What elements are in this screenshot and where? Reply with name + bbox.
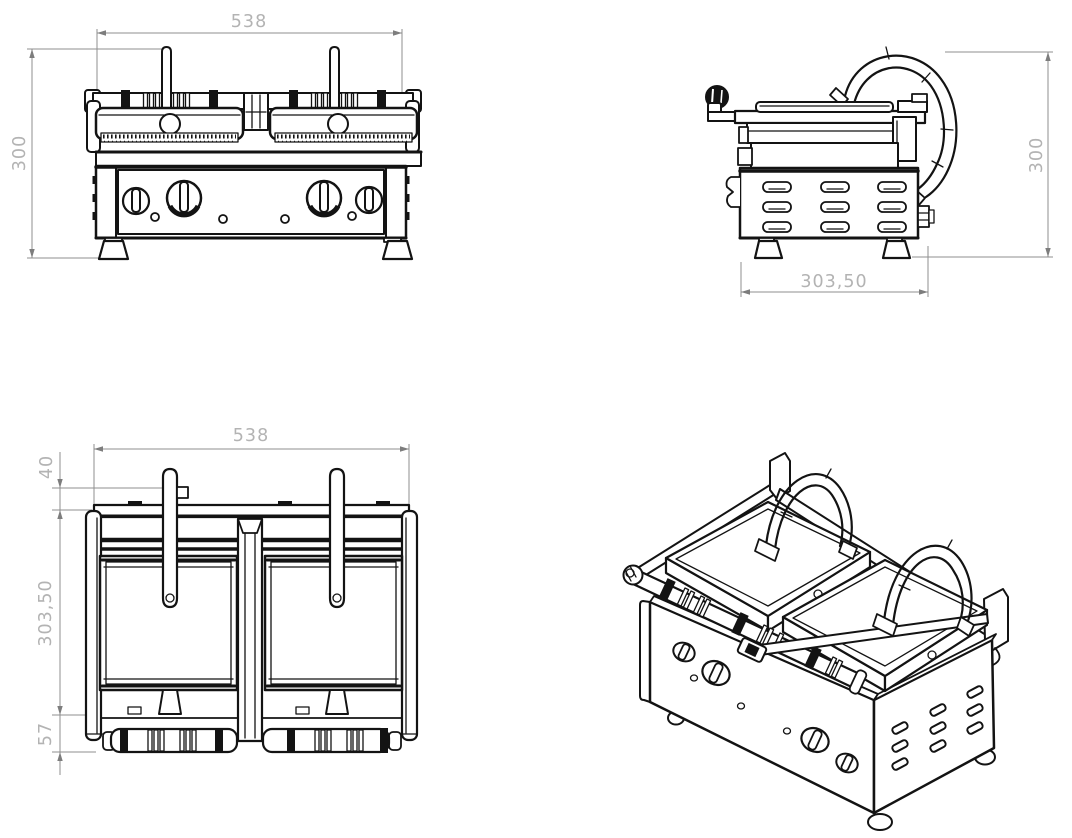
iso-indicator-3 [784, 728, 791, 734]
front-indicator-2 [219, 215, 227, 223]
side-foot-right [883, 238, 910, 258]
iso-indicator-1 [691, 675, 698, 681]
front-indicator-4 [348, 212, 356, 220]
top-dimension-width: 538 [94, 426, 409, 505]
side-view: 303,50 300 [706, 47, 1053, 297]
top-handle-right [330, 469, 344, 607]
dim-front-height: 300 [10, 135, 30, 171]
side-body [727, 168, 935, 238]
front-lid-left [96, 108, 243, 142]
front-lid-right-bolt [328, 114, 348, 134]
top-center-column [238, 519, 262, 741]
front-indicator-1 [151, 213, 159, 221]
front-knob-small-left [123, 188, 149, 214]
dim-top-hinge-offset: 57 [36, 722, 56, 746]
dim-side-depth: 303,50 [800, 272, 867, 292]
side-dimension-height: 300 [912, 52, 1053, 257]
front-view: 538 300 [10, 12, 421, 259]
front-dimension-width: 538 [97, 12, 402, 93]
front-indicator-3 [281, 215, 289, 223]
dim-top-width: 538 [233, 426, 269, 446]
side-lower-plate [738, 117, 916, 168]
front-lid-left-bolt [160, 114, 180, 134]
iso-indicator-2 [738, 703, 745, 709]
front-handle-left [162, 47, 171, 110]
side-foot-left [755, 238, 782, 258]
technical-drawing-canvas: 538 300 [0, 0, 1072, 838]
isometric-view [624, 453, 1009, 830]
dim-front-width: 538 [231, 12, 267, 32]
top-view: 538 40 303,50 57 [36, 426, 417, 775]
front-foot-left [99, 238, 128, 259]
front-drip-band [96, 152, 421, 166]
front-knob-small-right [356, 187, 382, 213]
dim-side-height: 300 [1027, 137, 1047, 173]
front-foot-right [383, 238, 412, 259]
side-vent-slots [763, 182, 906, 232]
top-rail-right [402, 511, 417, 740]
top-back-band [94, 501, 409, 517]
front-knob-large-left [167, 181, 201, 215]
dim-top-handle-offset: 40 [37, 455, 57, 479]
dim-top-depth: 303,50 [36, 579, 56, 646]
front-control-panel [93, 166, 410, 238]
iso-foot-front [868, 814, 892, 830]
front-knob-large-right [307, 181, 341, 215]
drawing-sheet: 538 300 [0, 0, 1072, 838]
front-lid-right [270, 108, 417, 142]
front-handle-right [330, 47, 339, 110]
iso-arm-knob [624, 566, 643, 585]
